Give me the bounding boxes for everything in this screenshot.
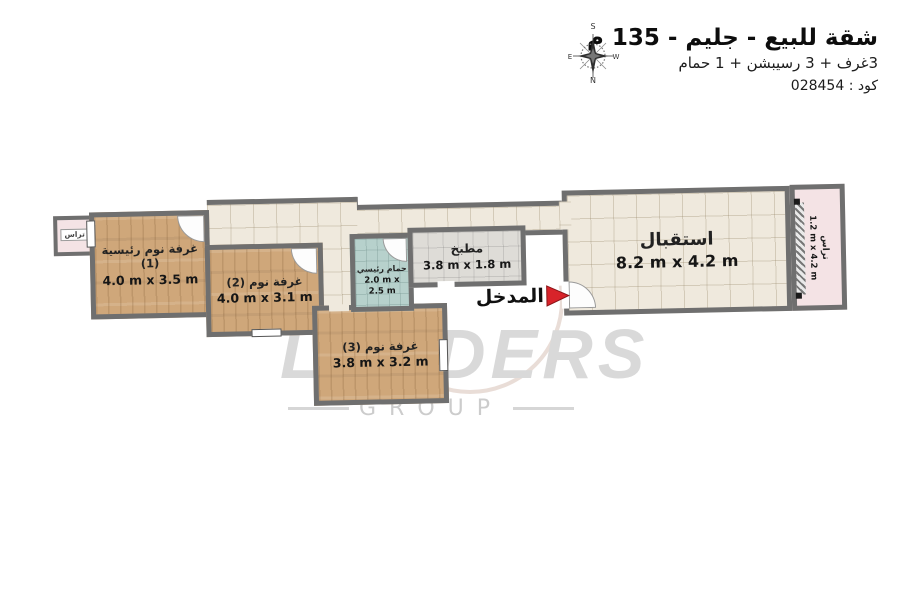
- corridor-reception-passage: [559, 201, 572, 229]
- bedroom3-dims: 3.8 m x 3.2 m: [333, 353, 429, 371]
- window-bedroom2: [251, 329, 281, 338]
- reception-dims: 8.2 m x 4.2 m: [616, 251, 739, 274]
- bedroom2-dims: 4.0 m x 3.1 m: [217, 289, 313, 307]
- window-bedroom3: [439, 339, 449, 371]
- terrace-left-name: تراس: [60, 229, 89, 242]
- kitchen-dims: 3.8 m x 1.8 m: [423, 257, 511, 273]
- bedroom3-name: غرفة نوم (3): [342, 338, 418, 354]
- entrance-marker: المدخل: [445, 281, 572, 312]
- bathroom-name: حمام رئيسي: [357, 264, 407, 275]
- svg-text:E: E: [568, 53, 572, 61]
- terrace-right-dims: 1.2 m x 4.2 m: [806, 215, 818, 280]
- master-bedroom-name: غرفة نوم رئيسية (1): [95, 241, 206, 272]
- compass-rose-icon: S N E W: [566, 20, 620, 84]
- listing-title: شقة للبيع - جليم - 135 م: [587, 24, 878, 53]
- floorplan-listing-image: LEADERS GROUP شقة للبيع - جليم - 135 م 3…: [0, 0, 900, 600]
- room-kitchen: مطبخ 3.8 m x 1.8 m: [407, 225, 526, 287]
- room-bedroom3: غرفة نوم (3) 3.8 m x 3.2 m: [312, 303, 449, 406]
- bedroom2-label: غرفة نوم (2) 4.0 m x 3.1 m: [216, 273, 312, 306]
- listing-header: شقة للبيع - جليم - 135 م 3غرف + 3 رسيبشن…: [587, 24, 878, 94]
- entrance-landing-notch: [525, 230, 563, 287]
- bedroom2-name: غرفة نوم (2): [226, 274, 302, 290]
- terrace-right-label: تراس 1.2 m x 4.2 m: [790, 184, 848, 311]
- kitchen-name: مطبخ: [450, 241, 483, 257]
- entrance-label: المدخل: [476, 285, 544, 308]
- floor-plan: استقبال 8.2 m x 4.2 m تراس 1.2 m x 4.2 m…: [24, 171, 874, 439]
- kitchen-label: مطبخ 3.8 m x 1.8 m: [423, 241, 512, 273]
- bedroom3-label: غرفة نوم (3) 3.8 m x 3.2 m: [332, 338, 428, 371]
- master-bedroom-label: غرفة نوم رئيسية (1) 4.0 m x 3.5 m: [95, 241, 206, 289]
- svg-text:S: S: [590, 22, 595, 31]
- window-terrace-bedroom1: [86, 220, 96, 247]
- listing-subtitle: 3غرف + 3 رسيبشن + 1 حمام: [587, 54, 878, 72]
- terrace-right-name: تراس: [817, 214, 830, 279]
- entrance-arrow-icon: [545, 283, 571, 308]
- svg-text:W: W: [613, 53, 620, 61]
- door-gap-bedroom3: [329, 304, 349, 311]
- room-reception: استقبال 8.2 m x 4.2 m: [562, 186, 793, 316]
- listing-code: كود : 028454: [587, 78, 878, 94]
- reception-label: استقبال 8.2 m x 4.2 m: [615, 228, 739, 274]
- bathroom-label: حمام رئيسي 2.0 m x 2.5 m: [355, 264, 409, 297]
- svg-text:N: N: [590, 76, 596, 84]
- master-bedroom-dims: 4.0 m x 3.5 m: [102, 271, 198, 289]
- reception-name: استقبال: [639, 228, 713, 252]
- bathroom-dims: 2.0 m x 2.5 m: [355, 275, 408, 297]
